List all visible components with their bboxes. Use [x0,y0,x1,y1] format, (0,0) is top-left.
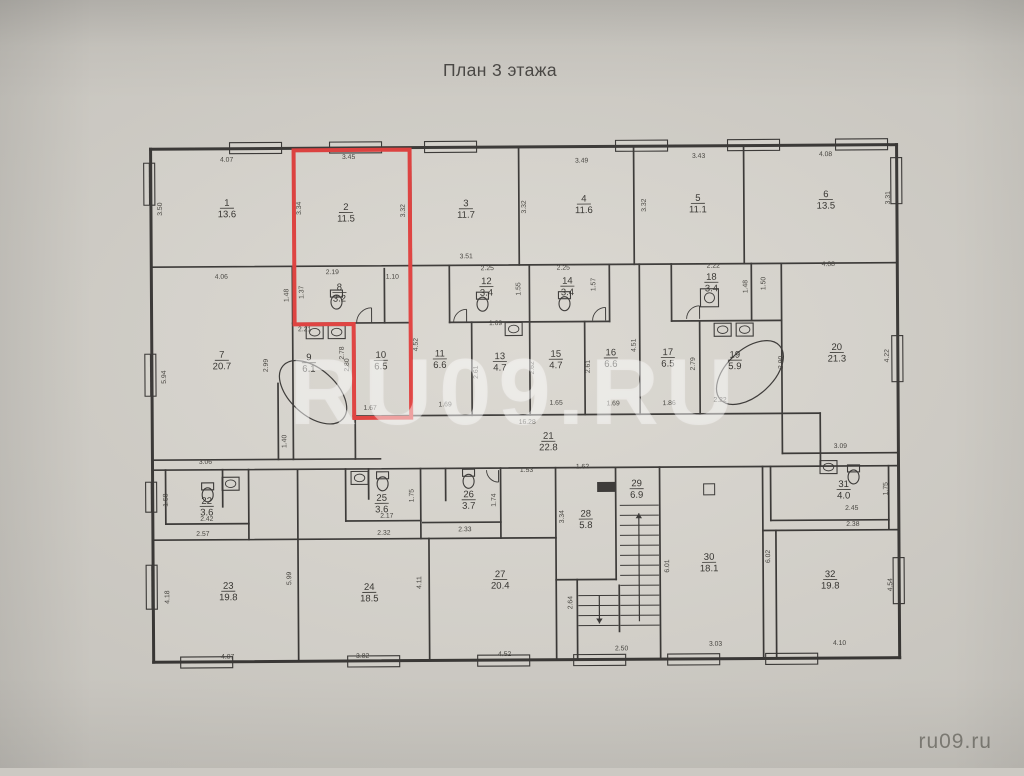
interior-wall [616,467,617,579]
dimension-label: 2.38 [846,521,859,528]
room-area: 20.7 [213,361,232,372]
room-number: 16 [605,347,616,358]
dimension-label: 4.52 [413,338,420,351]
room-area: 6.5 [661,359,674,370]
dimension-label: 3.50 [157,202,164,215]
room-area: 4.7 [549,360,562,371]
dimension-label: 3.32 [641,198,648,211]
dimension-label: 1.69 [606,400,619,407]
room-area: 3.4 [561,287,574,298]
dimension-label: 1.37 [298,285,305,298]
dimension-label: 1.75 [409,489,416,502]
interior-wall [429,539,430,661]
dimension-label: 2.17 [380,513,393,520]
room-area: 6.1 [302,364,315,375]
room-number: 17 [662,347,673,358]
dimension-label: 2.57 [196,531,209,538]
room-area: 11.7 [457,210,475,221]
dimension-label: 2.22 [713,397,726,404]
room-number: 13 [495,351,506,362]
page-title: План 3 этажа [0,60,1000,81]
dimension-label: 5.94 [161,370,168,383]
room-area: 3.2 [333,294,346,305]
room-number: 18 [706,272,717,283]
dimension-label: 2.80 [344,358,351,371]
room-number: 27 [495,569,506,580]
room-number: 8 [337,282,342,293]
dimension-label: 4.11 [416,576,423,589]
dimension-label: 6.02 [765,550,772,563]
room-number: 24 [364,582,375,593]
building-floor [151,145,900,663]
dimension-label: 3.43 [692,153,705,160]
room-area: 18.5 [360,593,379,604]
dimension-label: 3.49 [575,158,588,165]
interior-wall [700,321,701,414]
dimension-label: 1.10 [386,274,399,281]
dimension-label: 3.03 [709,641,722,648]
room-area: 11.5 [337,213,355,224]
room-number: 14 [562,276,573,287]
room-area: 13.5 [817,201,836,212]
dimension-label: 1.67 [364,405,377,412]
interior-wall [556,468,557,660]
interior-wall [639,264,640,414]
room-area: 20.4 [491,581,510,592]
room-number: 2 [343,202,348,213]
room-number: 12 [481,276,492,287]
room-number: 29 [631,478,642,489]
room-area: 3.4 [705,283,718,294]
dimension-label: 3.45 [342,154,355,161]
room-number: 9 [306,352,311,363]
interior-wall [660,467,661,659]
dimension-label: 16.28 [519,419,536,426]
room-number: 5 [695,193,700,204]
room-number: 19 [730,350,741,361]
interior-wall [763,530,899,531]
dimension-label: 1.48 [742,280,749,293]
dimension-label: 2.90 [778,356,785,369]
room-number: 32 [825,569,836,580]
room-number: 3 [463,198,468,209]
room-number: 22 [201,496,212,507]
dimension-label: 2.62 [529,361,536,374]
floor-plan-drawing: 113.6211.5311.7411.6511.1613.5720.783.29… [0,0,1024,771]
room-area: 4.0 [837,490,850,501]
dimension-label: 2.19 [326,269,339,276]
room-number: 4 [581,194,586,205]
dimension-label: 2.21 [298,326,311,333]
dimension-label: 3.34 [559,510,566,523]
room-area: 11.6 [575,205,593,216]
dimension-label: 4.06 [215,274,228,281]
dimension-label: 4.07 [221,654,234,661]
dimension-label: 3.31 [885,191,892,204]
room-area: 3.7 [462,501,475,512]
dimension-label: 1.65 [549,400,562,407]
room-area: 18.1 [700,563,719,574]
dimension-label: 2.78 [339,346,346,359]
dimension-label: 2.64 [567,596,574,609]
room-area: 19.8 [821,581,840,592]
room-number: 30 [704,552,715,563]
dimension-label: 2.79 [690,357,697,370]
dimension-label: 4.08 [819,151,832,158]
dimension-label: 4.52 [498,651,511,658]
room-area: 6.9 [630,490,643,501]
floor-plan: 113.6211.5311.7411.6511.1613.5720.783.29… [0,0,1024,771]
dimension-label: 4.07 [220,157,233,164]
dimension-label: 2.99 [263,359,270,372]
room-area: 21.3 [828,353,847,364]
dimension-label: 3.51 [460,253,473,260]
dimension-label: 2.50 [615,645,628,652]
dimension-label: 1.40 [281,435,288,448]
dimension-label: 2.25 [481,265,494,272]
room-area: 13.6 [218,209,237,220]
dimension-label: 1.86 [662,400,675,407]
interior-wall [763,466,764,658]
room-area: 6.6 [604,359,617,370]
dimension-label: 1.58 [163,493,170,506]
dimension-label: 1.74 [491,493,498,506]
dimension-label: 1.62 [576,464,589,471]
dimension-label: 1.57 [590,278,597,291]
dimension-label: 2.22 [707,263,720,270]
room-area: 5.9 [728,361,741,372]
room-area: 6.6 [433,360,446,371]
dimension-label: 1.48 [283,289,290,302]
room-area: 4.7 [493,363,506,374]
dimension-label: 3.34 [296,201,303,214]
room-number: 31 [838,479,849,490]
watermark-corner: ru09.ru [918,730,992,754]
room-area: 11.1 [689,204,707,215]
room-area: 5.8 [579,520,592,531]
dimension-label: 2.42 [200,516,213,523]
dimension-label: 2.25 [557,265,570,272]
room-number: 21 [543,431,554,442]
room-number: 10 [375,350,386,361]
room-area: 6.5 [374,361,387,372]
interior-wall [744,146,745,264]
dimension-label: 3.32 [521,200,528,213]
dimension-label: 4.10 [833,640,846,647]
dimension-label: 1.69 [489,320,502,327]
dimension-label: 1.69 [438,401,451,408]
room-area: 3.4 [480,288,493,299]
dimension-label: 2.61 [473,365,480,378]
dimension-label: 4.51 [631,338,638,351]
stair-direction-arrow [639,513,640,621]
dimension-label: 1.55 [515,282,522,295]
dimension-label: 6.01 [664,559,671,572]
dimension-label: 4.08 [822,261,835,268]
dimension-label: 5.99 [286,572,293,585]
interior-wall [166,524,249,525]
room-number: 23 [223,581,234,592]
interior-wall [782,453,898,454]
dimension-label: 2.32 [377,530,390,537]
interior-wall [529,265,530,415]
room-number: 28 [580,509,591,520]
interior-wall [519,147,520,265]
room-number: 20 [831,342,842,353]
room-number: 6 [823,189,828,200]
dimension-label: 3.09 [834,443,847,450]
dimension-label: 4.18 [164,590,171,603]
dimension-label: 4.22 [884,349,891,362]
dimension-label: 1.53 [520,467,533,474]
interior-wall [776,530,777,658]
interior-wall [771,520,889,521]
dimension-label: 2.33 [458,526,471,533]
dimension-label: 2.61 [585,360,592,373]
dimension-label: 3.32 [400,204,407,217]
dimension-label: 2.45 [845,505,858,512]
dimension-label: 3.06 [199,459,212,466]
dimension-label: 3.82 [356,653,369,660]
room-number: 1 [224,198,229,209]
room-number: 7 [219,350,224,361]
interior-wall [634,146,635,264]
dimension-label: 4.54 [887,578,894,591]
interior-wall [298,469,299,661]
dimension-label: 1.50 [760,277,767,290]
room-number: 11 [435,348,445,359]
room-area: 19.8 [219,592,238,603]
room-area: 22.8 [539,442,558,453]
dimension-label: 1.75 [883,482,890,495]
room-number: 25 [376,493,387,504]
room-number: 26 [463,489,474,500]
room-number: 15 [550,349,561,360]
vent-shaft [598,482,615,491]
interior-wall [672,320,782,321]
